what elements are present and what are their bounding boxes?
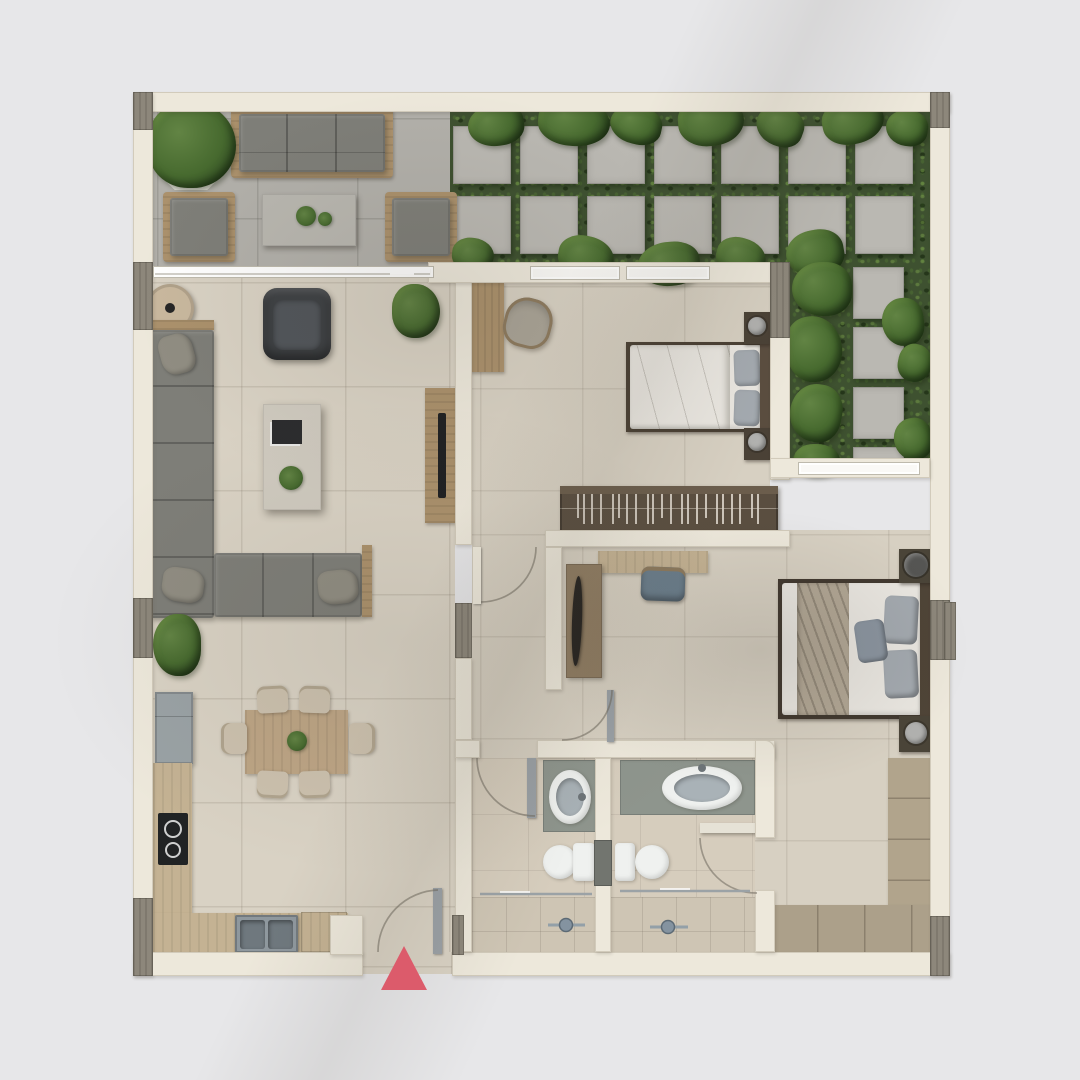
wall-bath-top-b (537, 740, 775, 758)
fridge (155, 692, 193, 764)
bath1-toilet-bowl (543, 845, 577, 879)
clothes-hanger (661, 494, 663, 518)
bed1-pillow (733, 350, 760, 387)
wall-bath-top-a (455, 740, 480, 758)
bedroom2-desk-chair (640, 566, 685, 602)
wall-hall-bedroom2 (545, 547, 562, 690)
wall-right (930, 92, 950, 976)
terrace-glass-door (153, 266, 434, 278)
bed2-pillow (883, 649, 919, 699)
bed2-lamp-top (904, 553, 928, 577)
bed1-lamp-bottom (748, 433, 766, 451)
bath-divider-door (594, 840, 612, 886)
bath2-faucet (698, 764, 706, 772)
clothes-hanger (591, 494, 593, 524)
outdoor-sofa-cushions (239, 114, 385, 172)
clothes-hanger (600, 494, 602, 524)
wardrobe-vertical (888, 758, 930, 922)
clothes-hanger (670, 494, 672, 524)
wall-column (133, 598, 153, 658)
l-sofa-wood-top (150, 320, 214, 330)
cooktop-burner (164, 820, 182, 838)
wall-living-divider (455, 265, 472, 545)
wall-column (133, 262, 153, 330)
bed1-pillow (733, 390, 760, 427)
bedroom2-window (798, 462, 920, 475)
dining-chair (221, 723, 247, 754)
bedroom1-door-panel (473, 547, 481, 604)
outdoor-armchair-right-cushion (392, 198, 450, 256)
entry-door-jamb (452, 915, 464, 955)
bath1-door-panel (527, 758, 536, 818)
bed2-throw-blanket (797, 583, 849, 715)
clothes-hanger (751, 494, 753, 518)
wall-top (133, 92, 950, 112)
side-table-dot (165, 303, 175, 313)
bed1-headboard (760, 340, 770, 434)
wall-left (133, 92, 153, 976)
shower-floor (472, 897, 755, 952)
clothes-hanger (681, 494, 683, 524)
clothes-hanger (652, 494, 654, 524)
plant-foliage (392, 284, 440, 338)
bath2-toilet-tank (615, 843, 635, 881)
sofa-pillow (316, 568, 359, 606)
tv-screen (438, 413, 446, 498)
plant-foliage (153, 614, 201, 676)
wall-column (770, 262, 790, 338)
clothes-hanger (577, 494, 579, 518)
cooktop-burner (165, 842, 181, 858)
l-sofa-wood-end (362, 545, 372, 617)
clothes-hanger (705, 494, 707, 518)
bedroom1-window-2 (626, 266, 710, 280)
clothes-hanger (716, 494, 718, 524)
clothes-hanger (696, 494, 698, 524)
coffee-table-plant (279, 466, 303, 490)
clothes-hanger (618, 494, 620, 518)
lounge-chair-seat (273, 300, 321, 350)
bath2-toilet-bowl (635, 845, 669, 879)
table-plant (296, 206, 316, 226)
dining-chair (349, 723, 375, 754)
sink-basin (268, 920, 293, 949)
dining-chair (256, 770, 288, 799)
bedroom1-closet (560, 486, 778, 532)
wall-column-bump (944, 602, 956, 660)
wall-bath2-right-lower (755, 890, 775, 952)
garden-paver (855, 196, 913, 254)
bath2-shelf (700, 823, 760, 833)
clothes-hanger (635, 494, 637, 524)
bedroom1-desk (470, 282, 504, 372)
floor-plan (0, 0, 1080, 1080)
bath1-faucet (578, 793, 586, 801)
outdoor-armchair-left-cushion (170, 198, 228, 256)
dining-chair (299, 685, 331, 713)
bedroom1-window-1 (530, 266, 620, 280)
wardrobe-horizontal (770, 905, 930, 952)
bed1-duvet (630, 345, 730, 429)
clothes-hanger (583, 494, 585, 524)
clothes-hanger (757, 494, 759, 524)
clothes-hanger (722, 494, 724, 524)
wall-living-divider-low (455, 658, 472, 740)
coffee-table-book (272, 420, 302, 444)
wall-column (133, 898, 153, 976)
clothes-hanger (647, 494, 649, 524)
bed1-lamp-top (748, 317, 766, 335)
sink-basin (240, 920, 265, 949)
table-plant (318, 212, 332, 226)
clothes-hanger (612, 494, 614, 524)
entry-wall-stub (330, 915, 363, 955)
clothes-hanger (687, 494, 689, 524)
bedroom2-door-panel (607, 690, 614, 742)
clothes-hanger (731, 494, 733, 524)
wall-column (930, 92, 950, 128)
wall-column (133, 92, 153, 130)
clothes-hanger (739, 494, 741, 524)
dining-centerpiece (287, 731, 307, 751)
plant-foliage (148, 102, 236, 188)
wall-bedroom1-bottom (545, 530, 790, 547)
wall-bottom-left (133, 952, 363, 976)
entry-door-panel (433, 888, 442, 954)
dining-chair (256, 685, 288, 714)
bath1-toilet-tank (573, 843, 595, 881)
wall-bottom-right (452, 952, 950, 976)
plant-foliage (792, 262, 852, 316)
bed2-lamp-bottom (905, 722, 927, 744)
dining-chair (299, 770, 331, 798)
wall-bath2-right-upper (755, 740, 775, 838)
clothes-hanger (626, 494, 628, 524)
bed2-pillow (883, 595, 919, 645)
wall-column (930, 916, 950, 976)
wall-column (455, 603, 472, 658)
bath2-sink-bowl (674, 774, 730, 802)
bed2-accent-pillow (853, 618, 889, 664)
